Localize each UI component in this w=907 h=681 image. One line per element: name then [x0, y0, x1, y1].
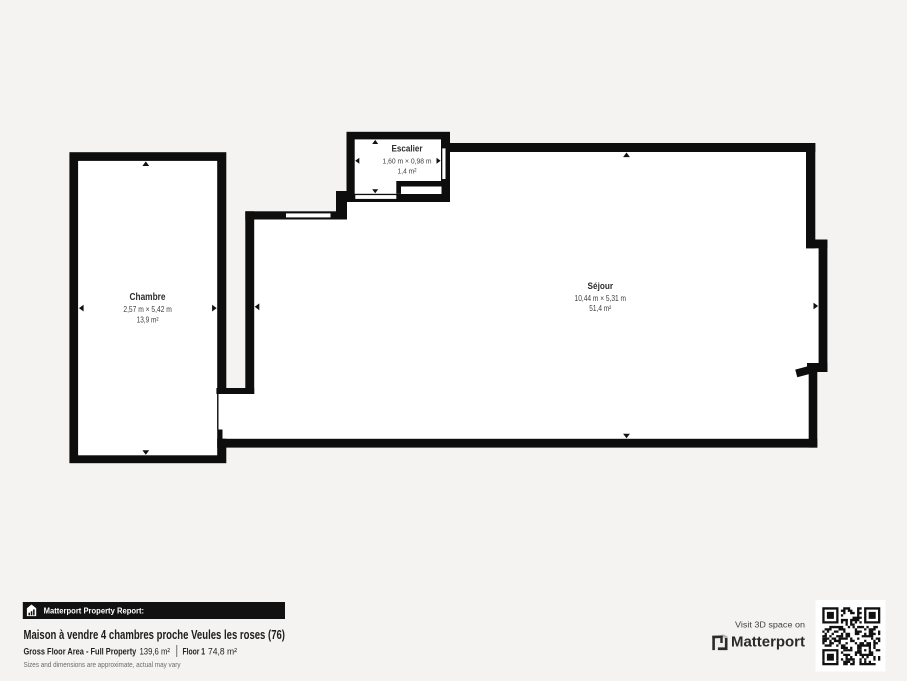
svg-text:Escalier: Escalier: [392, 144, 424, 154]
svg-text:Gross Floor Area - Full Proper: Gross Floor Area - Full Property: [24, 645, 137, 656]
svg-text:Visit 3D space on: Visit 3D space on: [735, 620, 805, 630]
svg-text:Sizes and dimensions are appro: Sizes and dimensions are approximate, ac…: [24, 660, 181, 669]
svg-text:Matterport Property Report:: Matterport Property Report:: [44, 606, 145, 616]
svg-text:Séjour: Séjour: [588, 281, 614, 292]
svg-text:10,44 m × 5,31 m: 10,44 m × 5,31 m: [575, 293, 627, 303]
svg-text:Floor 1: Floor 1: [183, 645, 206, 656]
svg-text:Matterport: Matterport: [731, 635, 805, 651]
svg-text:74,8 m²: 74,8 m²: [208, 645, 237, 656]
svg-text:51,4 m²: 51,4 m²: [589, 303, 611, 313]
svg-text:1,60 m × 0,98 m: 1,60 m × 0,98 m: [383, 156, 432, 165]
svg-text:139,6 m²: 139,6 m²: [140, 645, 171, 656]
svg-text:1,4 m²: 1,4 m²: [398, 166, 417, 175]
svg-text:13,9 m²: 13,9 m²: [137, 314, 159, 324]
svg-text:Maison à vendre 4 chambres pro: Maison à vendre 4 chambres proche Veules…: [24, 628, 286, 642]
svg-text:2,57 m × 5,42 m: 2,57 m × 5,42 m: [123, 304, 172, 314]
svg-text:Chambre: Chambre: [130, 292, 166, 303]
